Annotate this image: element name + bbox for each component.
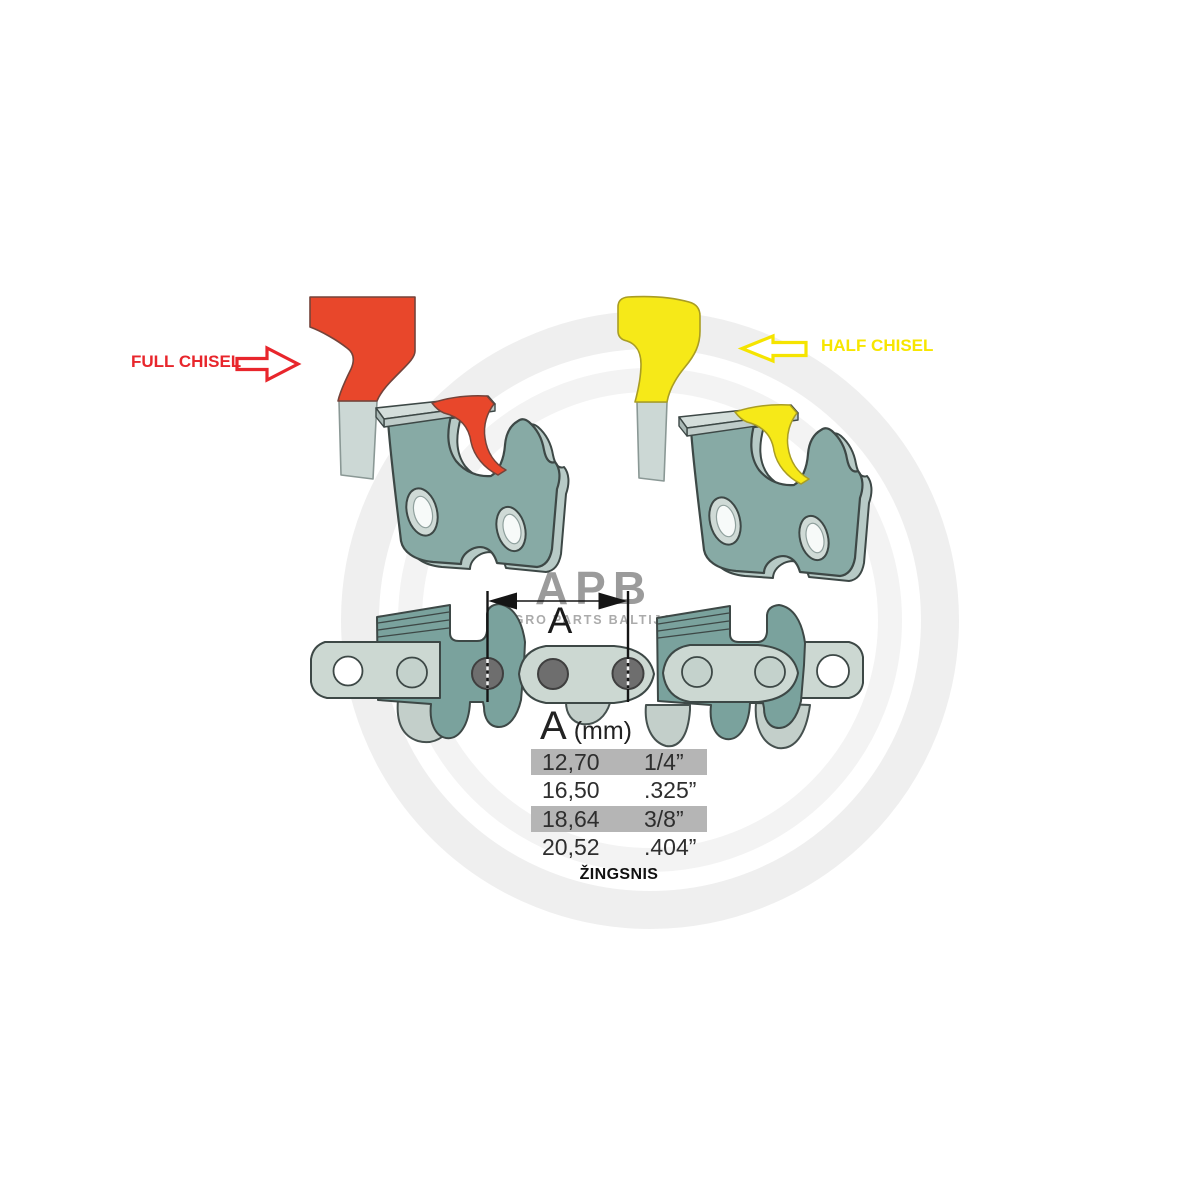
pitch-caption: ŽINGSNIS bbox=[531, 866, 707, 884]
pitch-table-row: 18,64 3/8” bbox=[531, 806, 707, 832]
dimension-letter: A bbox=[548, 600, 573, 641]
full-chisel-label: FULL CHISEL bbox=[131, 352, 241, 372]
chain-rivets bbox=[472, 658, 644, 689]
full-chisel-profile bbox=[310, 297, 415, 401]
pitch-inch-value: .325” bbox=[644, 776, 696, 805]
pitch-table-row: 16,50 .325” bbox=[531, 776, 707, 805]
pitch-table: 12,70 1/4” 16,50 .325” 18,64 3/8” 20,52 … bbox=[531, 748, 707, 862]
pitch-inch-value: 1/4” bbox=[644, 749, 684, 775]
full-chisel-arrow-icon bbox=[237, 348, 298, 380]
pitch-table-row: 20,52 .404” bbox=[531, 833, 707, 862]
pitch-mm-value: 12,70 bbox=[542, 749, 600, 775]
pitch-inch-value: .404” bbox=[644, 833, 696, 862]
pitch-table-header: A(mm) bbox=[540, 706, 632, 746]
pitch-mm-value: 16,50 bbox=[542, 776, 600, 805]
pitch-table-row: 12,70 1/4” bbox=[531, 749, 707, 775]
chisel-shank bbox=[339, 401, 377, 479]
chain-diagram-canvas: APB AGRO PARTS BALTIJA bbox=[0, 0, 1188, 1188]
pitch-mm-value: 18,64 bbox=[542, 806, 600, 832]
pitch-mm-value: 20,52 bbox=[542, 833, 600, 862]
watermark-subtext: AGRO PARTS BALTIJA bbox=[503, 613, 673, 627]
pitch-header-symbol: A bbox=[540, 704, 567, 748]
chisel-shank bbox=[637, 402, 667, 481]
half-chisel-label: HALF CHISEL bbox=[821, 336, 933, 356]
pitch-inch-value: 3/8” bbox=[644, 806, 684, 832]
pitch-header-unit: (mm) bbox=[574, 717, 632, 745]
chain-diagram-page: APB AGRO PARTS BALTIJA bbox=[0, 0, 1188, 1188]
